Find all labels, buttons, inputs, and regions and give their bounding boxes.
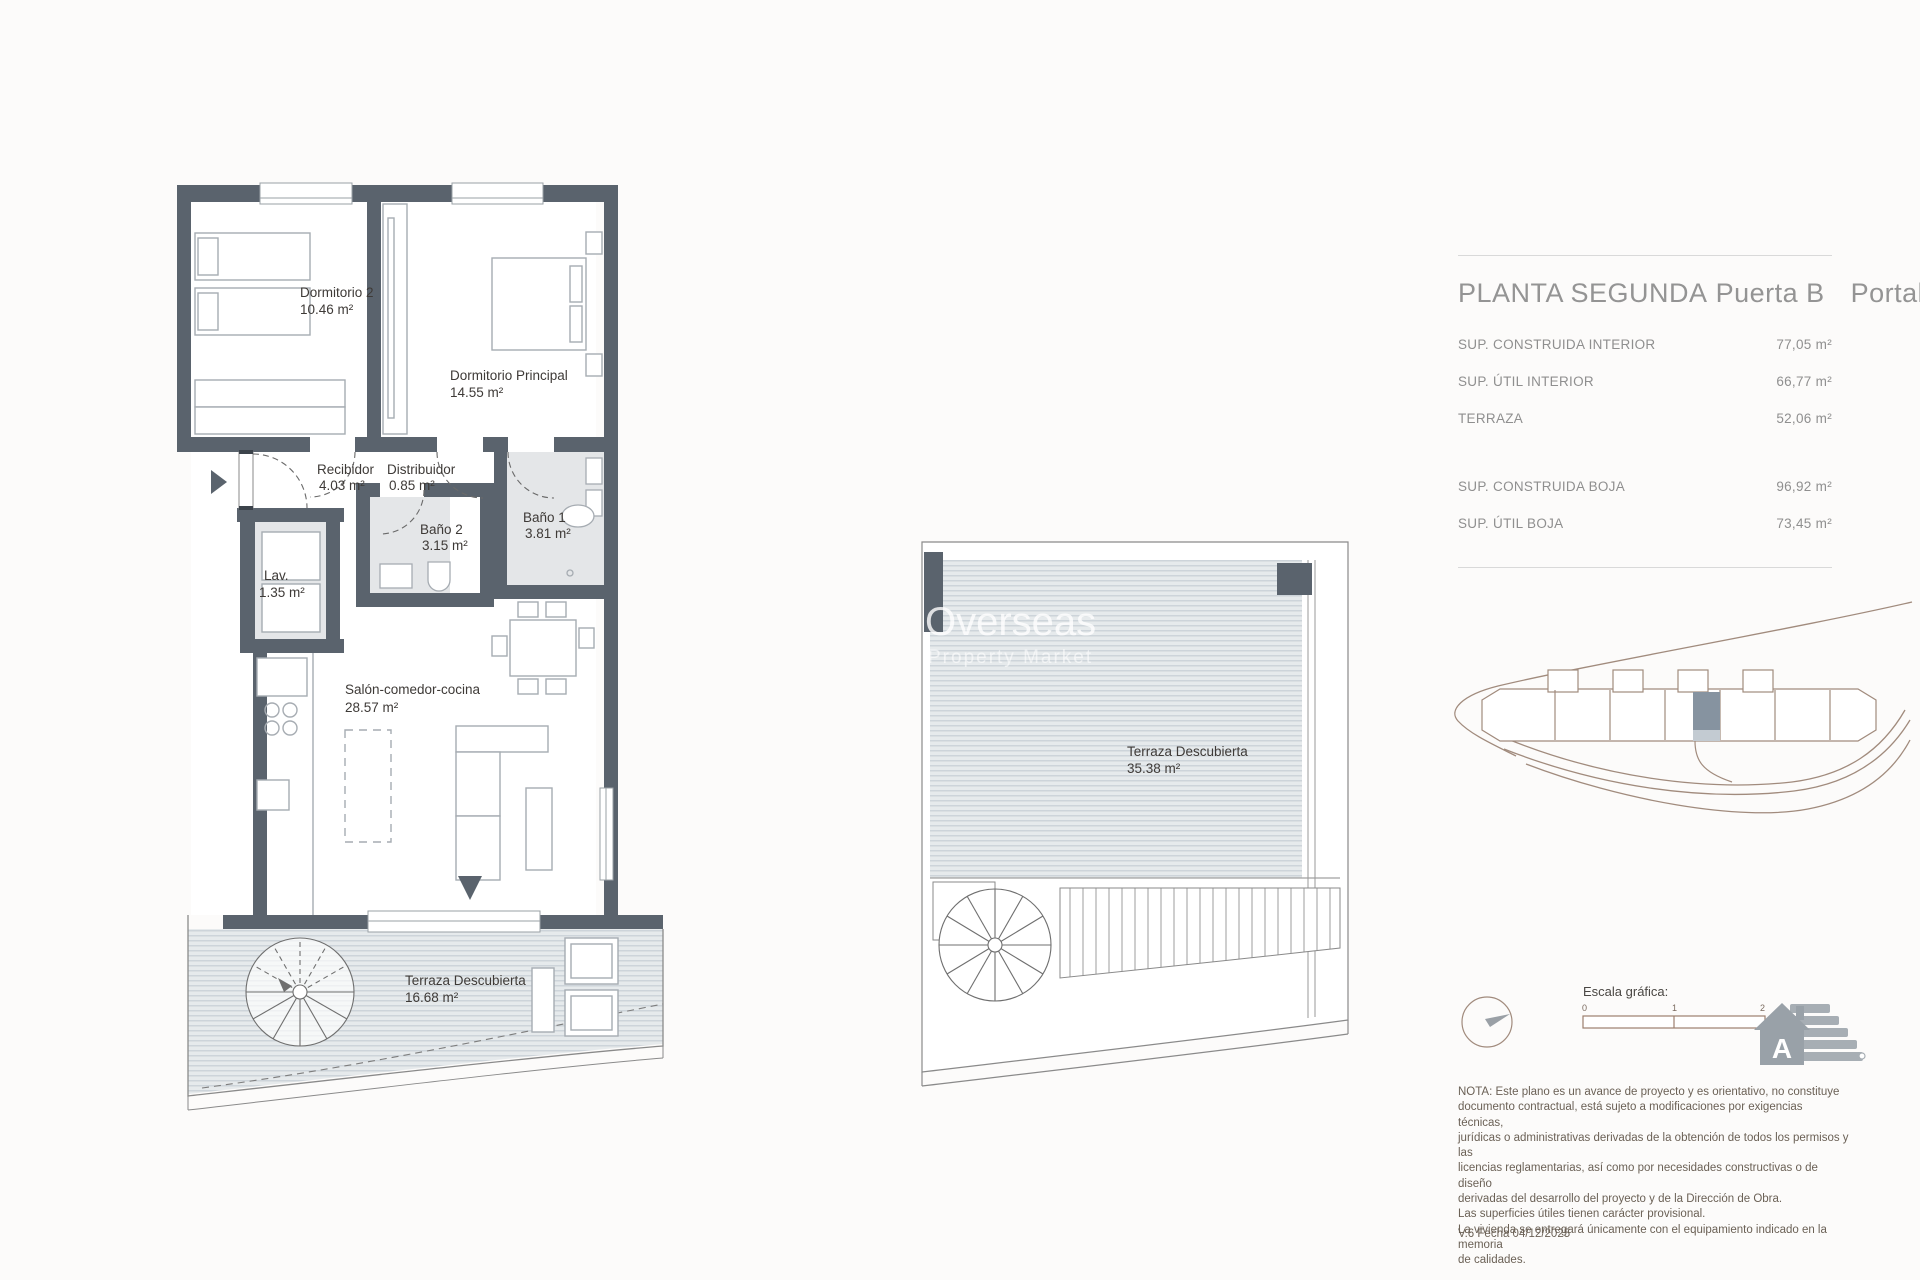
scale-bar: 0 1 2 [1580, 1002, 1770, 1036]
svg-text:3.15 m²: 3.15 m² [422, 538, 468, 553]
title-planta: PLANTA SEGUNDA [1458, 278, 1708, 308]
disclaimer-note: NOTA: Este plano es un avance de proyect… [1458, 1085, 1850, 1269]
roof-terrace-plan: Overseas Property Market Terraza Descubi… [900, 520, 1370, 1120]
area-label: SUP. ÚTIL INTERIOR [1458, 374, 1594, 389]
building-outline [1482, 670, 1876, 782]
area-label: TERRAZA [1458, 411, 1523, 426]
room-label-terraza: Terraza Descubierta [405, 973, 526, 988]
spiral-stair [246, 938, 354, 1046]
energy-rating-icon: A [1750, 990, 1870, 1070]
area-label: SUP. CONSTRUIDA INTERIOR [1458, 337, 1655, 352]
room-label-salon: Salón-comedor-cocina [345, 682, 481, 697]
compass-icon [1459, 994, 1515, 1050]
version-date: V.6 Fecha 04/12/2025 [1458, 1228, 1570, 1240]
area-row: SUP. CONSTRUIDA INTERIOR 77,05 m² [1458, 337, 1832, 352]
note-line: licencias reglamentarias, así como por n… [1458, 1161, 1850, 1192]
main-floor-plan: Dormitorio 2 10.46 m² Dormitorio Princip… [140, 140, 720, 1140]
room-label-dormitorio-principal: Dormitorio Principal [450, 368, 568, 383]
entry-door [239, 450, 253, 510]
note-line: documento contractual, está sujeto a mod… [1458, 1100, 1850, 1131]
svg-text:4.03 m²: 4.03 m² [319, 478, 365, 493]
watermark-line1: Overseas [925, 600, 1096, 644]
area-value: 52,06 m² [1776, 411, 1832, 426]
divider-top [1458, 255, 1832, 256]
title-portal: Portal 3 [1851, 278, 1920, 308]
area-value: 73,45 m² [1776, 516, 1832, 531]
area-row: SUP. ÚTIL BOJA 73,45 m² [1458, 516, 1832, 531]
highlighted-unit [1693, 692, 1720, 730]
watermark-line2: Property Market [928, 647, 1093, 668]
divider-middle [1458, 567, 1832, 568]
note-line: derivadas del desarrollo del proyecto y … [1458, 1192, 1850, 1207]
room-label-lavadero: Lav. [264, 568, 289, 583]
svg-text:3.81 m²: 3.81 m² [525, 526, 571, 541]
area-row: SUP. ÚTIL INTERIOR 66,77 m² [1458, 374, 1832, 389]
svg-text:16.68 m²: 16.68 m² [405, 990, 459, 1005]
floorplan-page: Dormitorio 2 10.46 m² Dormitorio Princip… [0, 0, 1920, 1280]
area-row: SUP. CONSTRUIDA BOJA 96,92 m² [1458, 479, 1832, 494]
room-label-dormitorio2: Dormitorio 2 [300, 285, 374, 300]
svg-text:1.35 m²: 1.35 m² [259, 585, 305, 600]
watermark: Overseas Property Market [925, 600, 1096, 668]
area-label: SUP. CONSTRUIDA BOJA [1458, 479, 1625, 494]
svg-text:14.55 m²: 14.55 m² [450, 385, 504, 400]
area-label: SUP. ÚTIL BOJA [1458, 516, 1563, 531]
note-line: jurídicas o administrativas derivadas de… [1458, 1131, 1850, 1162]
room-label-bano2: Baño 2 [420, 522, 463, 537]
svg-text:28.57 m²: 28.57 m² [345, 700, 399, 715]
room-label-roof-terraza: Terraza Descubierta [1127, 744, 1248, 759]
energy-letter: A [1772, 1033, 1792, 1064]
roof-spiral-stair [939, 889, 1051, 1001]
svg-text:0: 0 [1582, 1003, 1587, 1013]
svg-text:0.85 m²: 0.85 m² [389, 478, 435, 493]
room-label-recibidor: Recibidor [317, 462, 375, 477]
site-plan [1440, 592, 1915, 872]
svg-text:10.46 m²: 10.46 m² [300, 302, 354, 317]
svg-text:35.38 m²: 35.38 m² [1127, 761, 1181, 776]
area-value: 96,92 m² [1776, 479, 1832, 494]
room-label-distribuidor: Distribuidor [387, 462, 456, 477]
note-line: NOTA: Este plano es un avance de proyect… [1458, 1085, 1850, 1100]
area-value: 66,77 m² [1776, 374, 1832, 389]
scale-label: Escala gráfica: [1583, 984, 1668, 999]
page-title: PLANTA SEGUNDAPuerta BPortal 3 [1458, 278, 1878, 309]
area-value: 77,05 m² [1776, 337, 1832, 352]
room-label-bano1: Baño 1 [523, 510, 566, 525]
svg-text:1: 1 [1672, 1003, 1677, 1013]
note-line: de calidades. [1458, 1253, 1850, 1268]
title-puerta: Puerta B [1716, 278, 1825, 308]
note-line: Las superficies útiles tienen carácter p… [1458, 1207, 1850, 1222]
area-row: TERRAZA 52,06 m² [1458, 411, 1832, 426]
